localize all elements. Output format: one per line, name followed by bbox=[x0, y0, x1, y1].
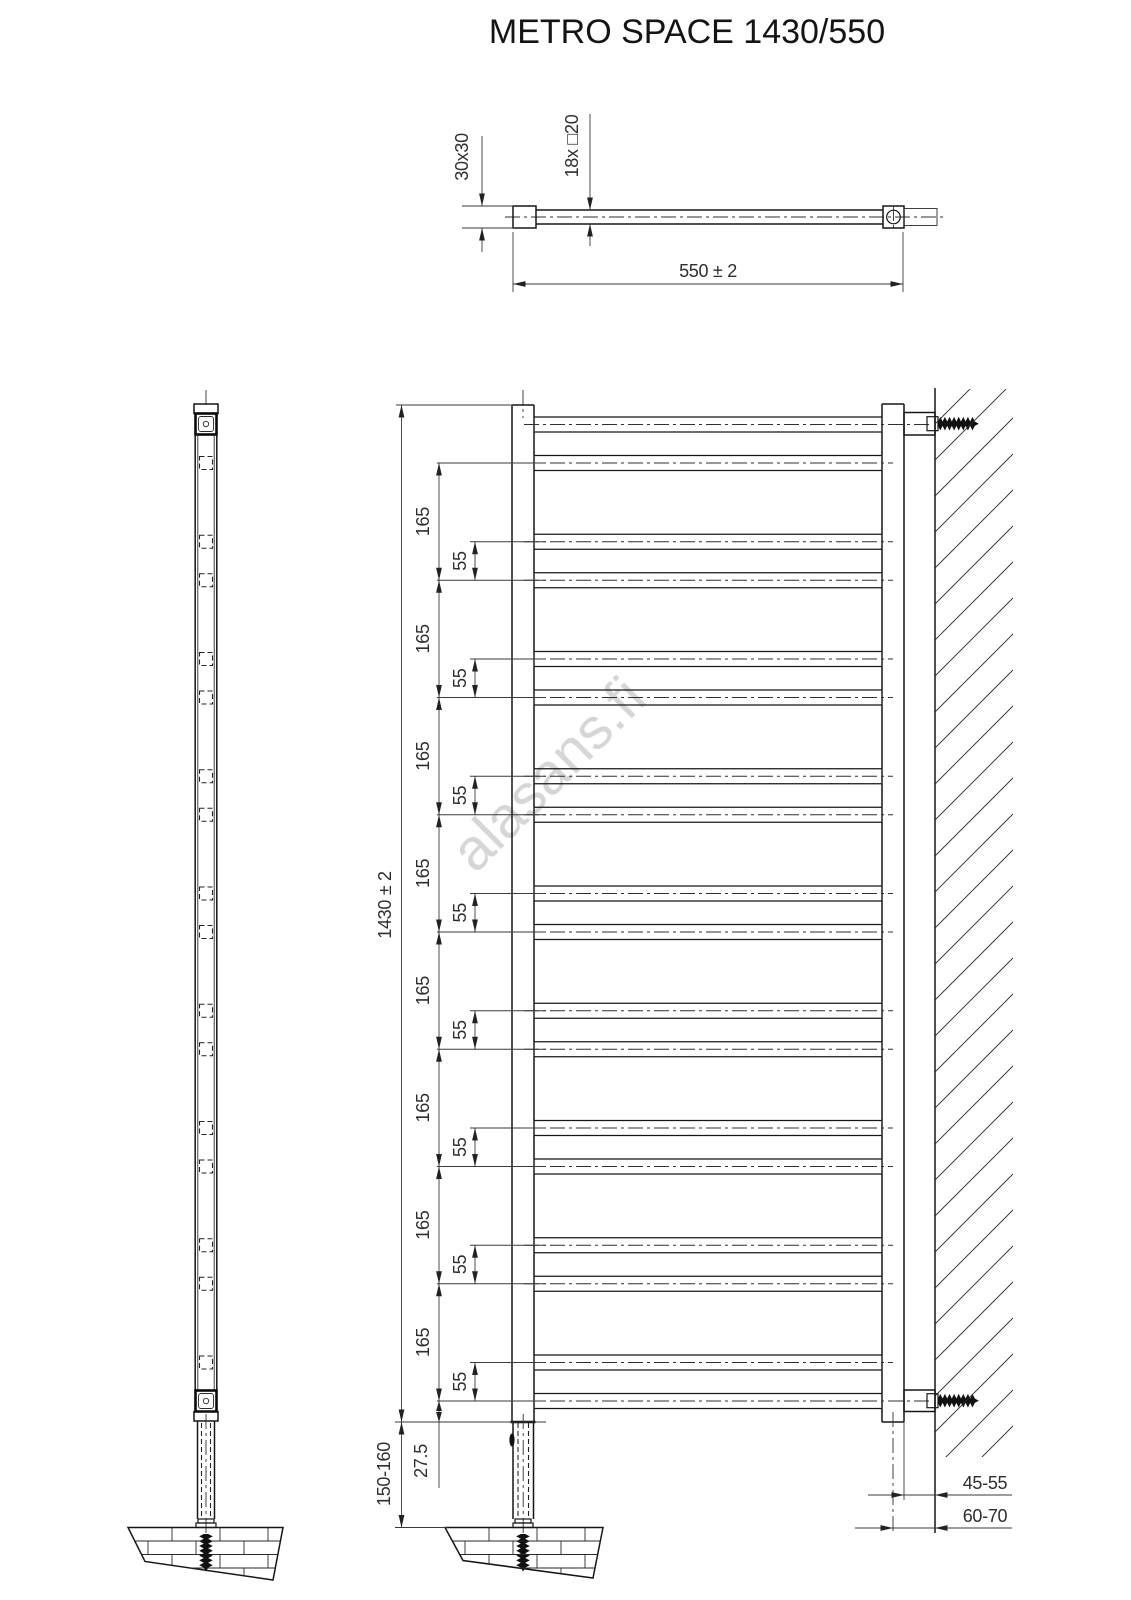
dimension-label: 165 bbox=[413, 1093, 433, 1122]
dimension-rung-count: 18x □20 bbox=[562, 114, 593, 246]
rung-socket bbox=[200, 1277, 213, 1290]
rung bbox=[524, 573, 893, 588]
rung bbox=[524, 1394, 929, 1409]
side-view-top-cap bbox=[194, 404, 218, 414]
rung-socket bbox=[200, 770, 213, 783]
side-view-rung-sockets bbox=[200, 457, 213, 1370]
dimension-label: 55 bbox=[450, 1372, 470, 1392]
mounting-screws bbox=[199, 417, 979, 1572]
rung-socket bbox=[200, 1043, 213, 1056]
rung bbox=[524, 1355, 893, 1370]
rung-socket bbox=[200, 1239, 213, 1252]
front-leg-valve-mark bbox=[509, 1434, 514, 1447]
dimension-label: 165 bbox=[413, 507, 433, 536]
dimension-label-profile: 30x30 bbox=[452, 133, 472, 181]
wall-hatching bbox=[935, 346, 1013, 1540]
dimension-label: 165 bbox=[413, 1328, 433, 1357]
dimension-label-bottom-offset: 27.5 bbox=[411, 1444, 431, 1478]
rung bbox=[524, 807, 893, 822]
drawing-canvas: alasans.fi METRO SPACE 1430/550 30x30 1 bbox=[0, 0, 1131, 1600]
dimension-label: 165 bbox=[413, 976, 433, 1005]
rung bbox=[524, 1238, 893, 1253]
dimension-label-height: 1430 ± 2 bbox=[375, 871, 395, 939]
dimension-label-rungs: 18x □20 bbox=[562, 114, 582, 177]
screw-head bbox=[927, 417, 938, 431]
side-view bbox=[120, 390, 292, 1582]
rung bbox=[524, 417, 929, 432]
rung-socket bbox=[200, 1004, 213, 1017]
dimension-label-wall-edge: 45-55 bbox=[963, 1473, 1008, 1493]
top-wall-bracket bbox=[904, 413, 935, 436]
floor-screw-thread bbox=[516, 1534, 530, 1572]
front-view: 1430 ± 2 1651651651651651651651655555555… bbox=[199, 346, 1013, 1582]
rung bbox=[524, 534, 893, 549]
dimension-label-width: 550 ± 2 bbox=[679, 261, 737, 281]
dimension-label: 55 bbox=[450, 1255, 470, 1275]
side-view-bottom-mount-plate bbox=[199, 1394, 214, 1409]
dimension-label: 55 bbox=[450, 668, 470, 688]
rung-socket bbox=[200, 457, 213, 470]
floor-screw-thread bbox=[199, 1534, 213, 1572]
dimension-profile-30x30: 30x30 bbox=[452, 133, 514, 252]
rung bbox=[524, 1159, 893, 1174]
rung-socket bbox=[200, 535, 213, 548]
technical-drawing-page: alasans.fi METRO SPACE 1430/550 30x30 1 bbox=[0, 0, 1131, 1600]
side-view-bottom-bolt bbox=[203, 1398, 208, 1403]
screw-thread bbox=[938, 417, 979, 431]
rung bbox=[524, 1003, 893, 1018]
rung bbox=[524, 925, 893, 940]
dimension-label-leg-height: 150-160 bbox=[374, 1442, 394, 1506]
rung bbox=[524, 1276, 893, 1291]
screw-thread bbox=[938, 1394, 979, 1408]
rung-socket bbox=[200, 653, 213, 666]
dimension-label: 55 bbox=[450, 1020, 470, 1040]
dimension-label: 55 bbox=[450, 1137, 470, 1157]
dimension-label: 165 bbox=[413, 741, 433, 770]
rung-socket bbox=[200, 1160, 213, 1173]
rung-socket bbox=[200, 808, 213, 821]
dimension-label: 165 bbox=[413, 624, 433, 653]
rung-socket bbox=[200, 574, 213, 587]
rung-socket bbox=[200, 887, 213, 900]
dimension-bottom-offset: 27.5 bbox=[411, 1401, 442, 1488]
rung-socket bbox=[200, 1356, 213, 1369]
dimension-label: 165 bbox=[413, 1210, 433, 1239]
dimension-label-wall-center: 60-70 bbox=[963, 1506, 1008, 1526]
rung bbox=[524, 652, 893, 667]
dimension-wall-distances: 45-55 60-70 bbox=[855, 1412, 1012, 1533]
rungs bbox=[524, 417, 929, 1409]
dimension-label: 165 bbox=[413, 859, 433, 888]
rung-socket bbox=[200, 926, 213, 939]
rung bbox=[524, 1121, 893, 1136]
top-view: 30x30 18x □20 550 ± 2 bbox=[452, 114, 947, 292]
side-view-top-bolt bbox=[203, 421, 208, 426]
dimension-label: 55 bbox=[450, 551, 470, 571]
rung-socket bbox=[200, 691, 213, 704]
side-view-top-mount-plate bbox=[199, 417, 214, 432]
rung bbox=[524, 886, 893, 901]
dimension-label: 55 bbox=[450, 903, 470, 923]
rung bbox=[524, 456, 893, 471]
drawing-title: METRO SPACE 1430/550 bbox=[489, 13, 885, 51]
rung bbox=[524, 1042, 893, 1057]
dimension-label: 55 bbox=[450, 786, 470, 806]
rung-socket bbox=[200, 1122, 213, 1135]
dimension-chain-165-55: 1651651651651651651651655555555555555555 bbox=[413, 463, 546, 1401]
dimension-width-550: 550 ± 2 bbox=[513, 232, 903, 292]
